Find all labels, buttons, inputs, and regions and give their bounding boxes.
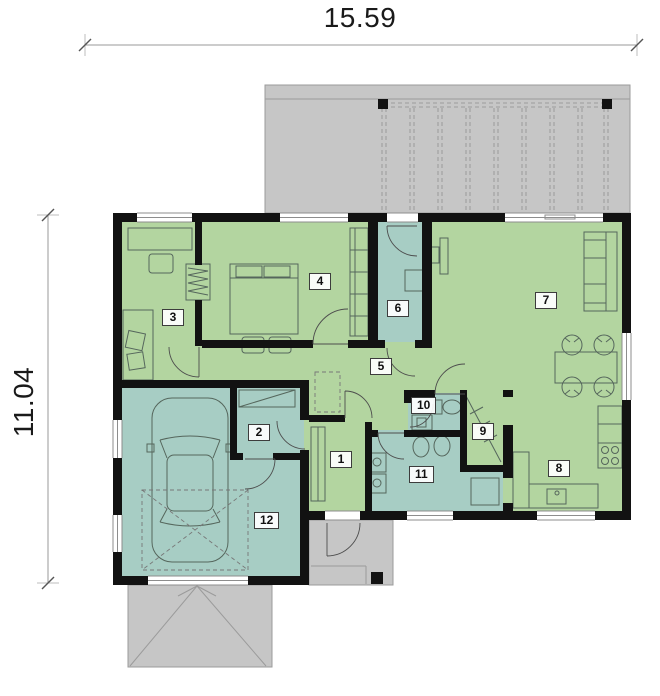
- window-room8-bottom: [537, 511, 595, 520]
- dimension-left: [37, 209, 59, 589]
- room-label-4: 4: [309, 273, 331, 290]
- room-label-12: 12: [254, 512, 279, 529]
- room-label-3: 3: [162, 309, 184, 326]
- window-room4-top: [280, 213, 348, 222]
- room-label-7: 7: [535, 292, 557, 309]
- dimension-height-label: 11.04: [8, 352, 40, 452]
- room-label-10: 10: [411, 397, 436, 414]
- driveway: [128, 585, 272, 667]
- dimension-top: [79, 34, 643, 56]
- room-label-6: 6: [387, 300, 409, 317]
- terrace-door-room6: [387, 213, 418, 222]
- window-garage-left-1: [113, 420, 122, 458]
- floor-plan-drawing: [0, 0, 660, 696]
- terrace-window-room7: [505, 213, 603, 222]
- terrace: [265, 85, 630, 213]
- room-label-8: 8: [548, 460, 570, 477]
- room-label-11: 11: [409, 466, 434, 483]
- window-dining-right: [622, 333, 631, 400]
- porch-column: [371, 572, 383, 584]
- window-garage-left-2: [113, 515, 122, 552]
- dimension-width-label: 15.59: [180, 2, 540, 34]
- entry-porch: [309, 520, 393, 585]
- floor-plan: 15.59 11.04 123456789101112: [0, 0, 660, 696]
- window-room3-top: [137, 213, 192, 222]
- garage-door: [148, 576, 248, 585]
- room-label-2: 2: [248, 424, 270, 441]
- room-label-9: 9: [472, 423, 494, 440]
- garage-floor: [118, 384, 304, 579]
- entry-door: [325, 511, 360, 520]
- room-label-1: 1: [330, 451, 352, 468]
- room-label-5: 5: [370, 358, 392, 375]
- room-6-floor: [378, 222, 422, 342]
- window-room11-bottom: [407, 511, 453, 520]
